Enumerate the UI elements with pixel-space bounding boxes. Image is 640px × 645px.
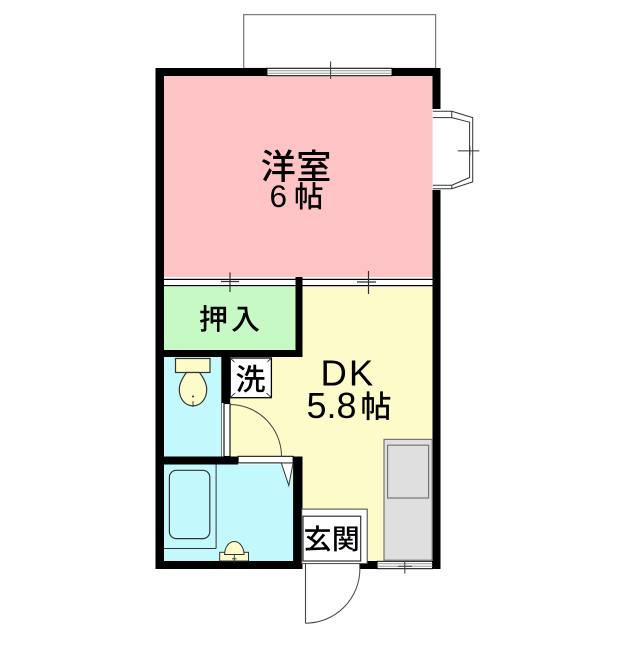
svg-text:6: 6 bbox=[270, 178, 288, 214]
svg-text:5.8: 5.8 bbox=[307, 385, 357, 426]
